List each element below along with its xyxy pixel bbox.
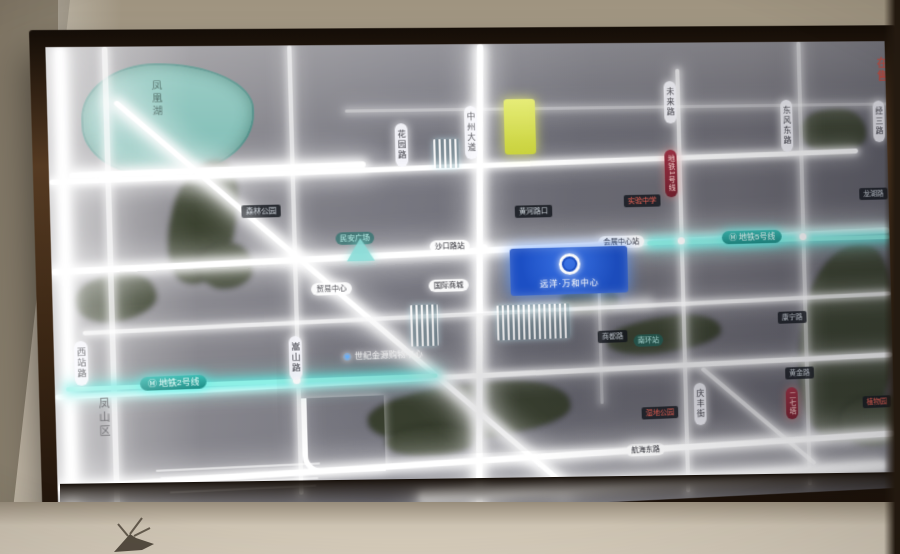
building-icon — [433, 139, 459, 168]
road-vertical — [287, 45, 304, 494]
poi-red-vertical: 二七塔 — [786, 387, 799, 419]
road-plate: 康宁路 — [778, 311, 807, 324]
metro-line-5-pill: Ⓜ 地铁5号线 — [722, 230, 783, 245]
road-name-pill: 未来路 — [663, 81, 676, 124]
road-vertical — [675, 69, 690, 492]
road-plate: 黄金路 — [785, 366, 814, 379]
metro-line-2-label: 地铁2号线 — [159, 376, 200, 389]
metro-icon: Ⓜ — [148, 378, 157, 390]
decor-object — [84, 514, 194, 554]
landmark-triangle-icon — [346, 238, 374, 262]
building-cluster-icon — [496, 303, 570, 340]
road-plate: 黄河路口 — [515, 205, 553, 218]
map-content: 凤凰湖 — [45, 41, 896, 530]
district-label: 凤山区 — [93, 397, 111, 439]
bottom-road-pill: 航海东路 — [626, 443, 665, 457]
metro-line-1-pill: 地铁1号线 — [664, 150, 677, 198]
map-panel: 凤凰湖 — [45, 41, 896, 530]
illuminated-map-display: 凤凰湖 — [45, 41, 896, 530]
road-name-pill: 庆丰街 — [694, 383, 707, 426]
right-edge-shadow — [884, 0, 900, 554]
road-vertical — [796, 42, 811, 486]
building-icon — [410, 304, 439, 346]
road-vertical-glare — [54, 47, 78, 529]
mall-poi: ◉ 世纪金源购物中心 — [343, 348, 423, 362]
road-plate-red: 实验中学 — [624, 194, 661, 207]
road-name-pill: 东风东路 — [780, 100, 793, 152]
project-plaque: 远洋·万和中心 — [510, 246, 629, 296]
road-horizontal — [83, 292, 891, 336]
lake-label: 凤凰湖 — [150, 80, 165, 118]
project-name: 远洋·万和中心 — [540, 276, 600, 289]
poi-red-label: 湿地公园 — [642, 406, 679, 420]
mall-label: 世纪金源购物中心 — [355, 348, 423, 362]
road-name-pill: 嵩山路 — [288, 336, 302, 380]
road-name-pill: 花园路 — [395, 123, 409, 167]
station-pill: 沙口路站 — [430, 240, 470, 253]
metro-line-5-label: 地铁5号线 — [739, 231, 776, 243]
road-plate: 商都路 — [598, 330, 628, 343]
yellow-lit-block — [504, 99, 537, 155]
mall-icon: ◉ — [343, 351, 352, 363]
road-vertical-main — [476, 44, 483, 509]
brand-ring-icon — [558, 253, 580, 275]
road-plate: 森林公园 — [241, 205, 281, 218]
road-horizontal — [345, 102, 896, 112]
poi-pill: 国际商城 — [428, 279, 468, 293]
park-shape — [800, 109, 866, 154]
poi-pill: 贸易中心 — [311, 282, 352, 296]
road-name-pill: 西站路 — [74, 341, 89, 386]
station-teal-tag: 南环站 — [634, 334, 664, 347]
road-name-pill: 中州大道 — [464, 106, 478, 160]
river-shape — [71, 267, 159, 327]
metro-line-2-pill: Ⓜ 地铁2号线 — [140, 375, 207, 391]
metro-icon: Ⓜ — [729, 232, 737, 243]
